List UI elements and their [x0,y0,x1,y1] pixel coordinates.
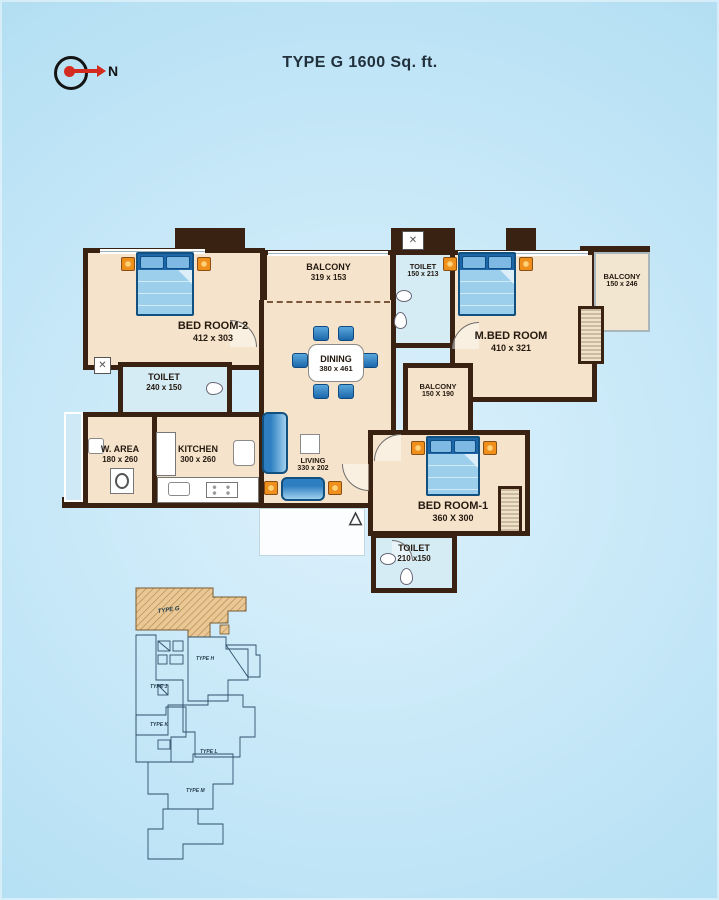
entrance-marker-icon: △ [349,509,362,526]
dining-table: DINING 380 x 461 [308,344,364,382]
keyplan-unit-type-g [136,588,246,637]
compass-north-label: N [108,63,118,79]
room-label: BALCONY [262,262,395,273]
label-balcony-right: BALCONY 150 x 246 [595,272,649,289]
key-plan: TYPE G TYPE H TYPE J TYPE K TYPE L TYPE … [128,585,263,870]
label-living: LIVING 330 x 202 [282,456,344,473]
room-dims: 240 x 150 [122,383,206,393]
keyplan-label-type-l: TYPE L [200,749,218,755]
bed-master [458,252,516,316]
room-label: M.BED ROOM [455,330,567,343]
room-dims: 319 x 153 [262,273,395,283]
label-toilet-top: TOILET 150 x 213 [392,262,454,279]
keyplan-outlines [136,635,260,859]
label-kitchen: KITCHEN 300 x 260 [162,444,234,464]
room-dims: 300 x 260 [162,455,234,465]
dining-chair [313,384,329,399]
label-toilet-bottom: TOILET 210 x150 [374,543,454,563]
kitchen-sink [168,482,190,496]
bed-bedroom1 [426,436,480,496]
label-master-bedroom: M.BED ROOM 410 x 321 [455,330,567,354]
room-label: BALCONY [405,382,471,391]
duct-x-icon: ✕ [402,231,424,250]
room-label: BALCONY [595,272,649,281]
room-dims: 180 x 260 [85,455,155,465]
room-dims: 150 x 213 [392,271,454,279]
room-label: BED ROOM-2 [158,320,268,333]
lamp-icon [197,257,211,271]
compass-arrowhead-icon [97,65,106,77]
label-toilet-left: TOILET 240 x 150 [122,372,206,392]
room-label: DINING [320,354,352,364]
keyplan-label-type-h: TYPE H [196,656,214,662]
room-label: LIVING [282,456,344,465]
stove-icon [206,482,238,498]
balcony-opening [267,301,390,303]
dining-chair [313,326,329,341]
lamp-icon [411,441,425,455]
room-dims: 412 x 303 [158,333,268,344]
window-strip [64,412,83,502]
room-dims: 380 x 461 [319,364,352,373]
floor-plan-page: TYPE G 1600 Sq. ft. N ✕ ✕ △ [0,0,719,900]
room-label: TOILET [374,543,454,554]
room-dims: 210 x150 [374,554,454,564]
room-dims: 360 X 300 [398,513,508,524]
sofa-loveseat [281,477,325,501]
keyplan-label-type-k: TYPE K [150,722,168,728]
wardrobe-hatch [578,306,604,364]
compass-arrow [72,69,98,73]
room-label: TOILET [122,372,206,383]
wc-icon [394,312,407,329]
dining-chair [338,384,354,399]
room-dims: 150 X 190 [405,391,471,399]
room-dims: 150 x 246 [595,281,649,289]
dining-chair [292,353,308,368]
wc-icon [400,568,413,585]
label-bedroom2: BED ROOM-2 412 x 303 [158,320,268,344]
label-work-area: W. AREA 180 x 260 [85,444,155,464]
window-balcony-top [268,251,388,256]
duct-x-icon: ✕ [94,357,111,374]
dining-chair [362,353,378,368]
label-balcony-top: BALCONY 319 x 153 [262,262,395,282]
bed-bedroom2 [136,252,194,316]
lamp-icon [519,257,533,271]
fridge [233,440,255,466]
lamp-icon [264,481,278,495]
keyplan-label-type-m: TYPE M [186,788,205,794]
tv-table [300,434,320,454]
room-dims: 330 x 202 [282,465,344,473]
lamp-icon [328,481,342,495]
room-label: W. AREA [85,444,155,455]
washing-machine-icon [110,468,134,494]
label-balcony-mid: BALCONY 150 X 190 [405,382,471,399]
label-bedroom1: BED ROOM-1 360 X 300 [398,500,508,524]
room-label: BED ROOM-1 [398,500,508,513]
room-label: TOILET [392,262,454,271]
room-dims: 410 x 321 [455,343,567,354]
washbasin-icon [396,290,412,302]
keyplan-label-type-j: TYPE J [150,684,167,690]
lamp-icon [483,441,497,455]
room-label: KITCHEN [162,444,234,455]
dining-chair [338,326,354,341]
page-title: TYPE G 1600 Sq. ft. [210,54,510,72]
lamp-icon [121,257,135,271]
